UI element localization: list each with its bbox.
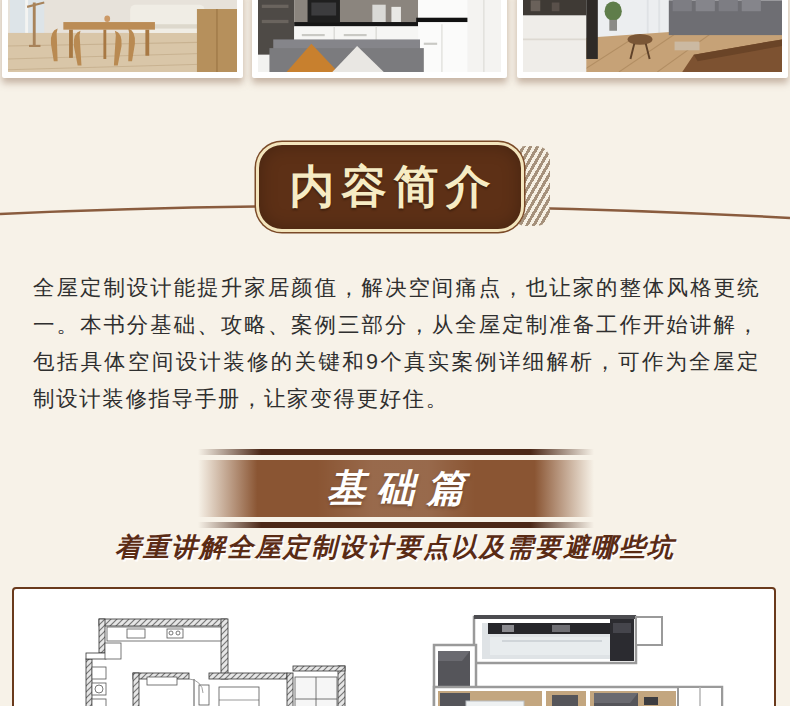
basics-subtitle: 着重讲解全屋定制设计要点以及需要避哪些坑 xyxy=(0,530,790,565)
gallery-photo-living xyxy=(517,0,788,78)
ribbon-top-stripe xyxy=(198,449,594,455)
ribbon-band: 基础篇 xyxy=(198,460,594,517)
floorplan-3d xyxy=(432,615,724,706)
ribbon-bottom-stripe xyxy=(198,522,594,528)
product-detail-page: 内容简介 全屋定制设计能提升家居颜值，解决空间痛点，也让家的整体风格更统一。本书… xyxy=(0,0,790,706)
gallery-photo-kitchen xyxy=(252,0,507,78)
floorplan-2d xyxy=(59,611,351,706)
basics-ribbon: 基础篇 xyxy=(198,449,594,528)
section-badge-intro: 内容简介 xyxy=(256,142,524,232)
living-room-illustration xyxy=(523,0,782,72)
ribbon-title: 基础篇 xyxy=(315,463,477,514)
intro-badge-title: 内容简介 xyxy=(283,157,498,217)
floorplan-panel xyxy=(12,587,776,706)
gallery-photo-dining xyxy=(2,0,243,78)
dining-room-illustration xyxy=(8,0,237,72)
intro-paragraph: 全屋定制设计能提升家居颜值，解决空间痛点，也让家的整体风格更统一。本书分基础、攻… xyxy=(33,270,760,418)
kitchen-illustration xyxy=(258,0,501,72)
